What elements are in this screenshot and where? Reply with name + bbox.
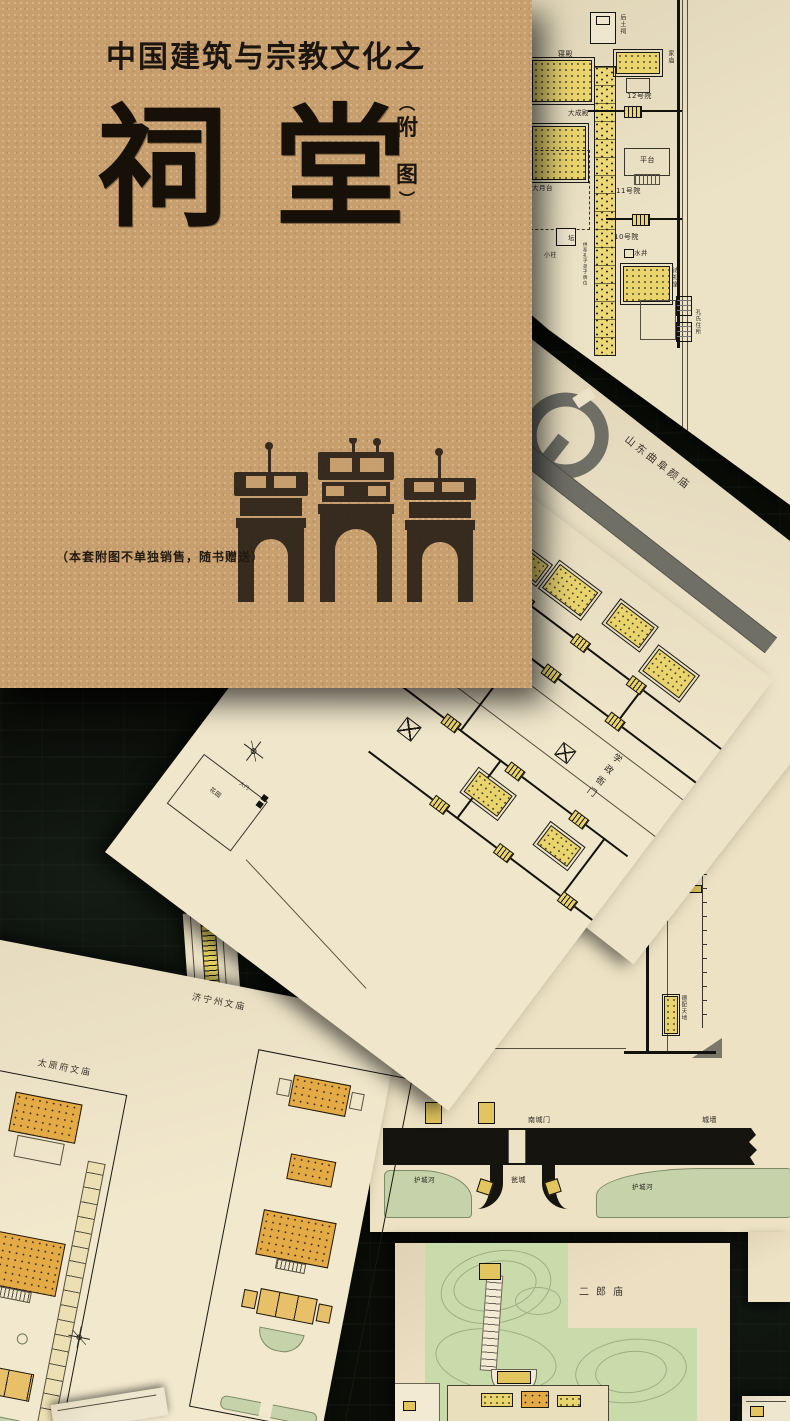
annotation-paren-close: ︶ bbox=[392, 192, 422, 208]
residence-block bbox=[676, 296, 692, 316]
shili-hall bbox=[623, 266, 670, 302]
plan-label: 诗礼堂 bbox=[670, 267, 677, 288]
plan-label: 后土祠 bbox=[618, 14, 625, 35]
sheet-title-right: 济宁州文庙 bbox=[191, 990, 247, 1013]
plan-label: 小柱 bbox=[544, 253, 557, 260]
stair-top-shrine bbox=[479, 1263, 501, 1280]
cover-note: （本套附图不单独销售，随书赠送） bbox=[56, 548, 264, 565]
moat-right bbox=[596, 1168, 790, 1218]
plan-label: 学政衙门 bbox=[581, 750, 623, 801]
sheet-margin-line bbox=[682, 0, 683, 470]
residence-block bbox=[676, 322, 692, 342]
hall bbox=[521, 1391, 549, 1408]
hall bbox=[642, 648, 696, 698]
hall bbox=[537, 825, 582, 867]
plan-label: 坛 bbox=[568, 235, 575, 242]
annotation-paren-open: ︵ bbox=[392, 96, 422, 112]
compass-rose-icon bbox=[66, 1324, 92, 1350]
sheet-erlang-temple: 二郎庙 bbox=[395, 1243, 730, 1421]
plan-label: 家庙 bbox=[666, 50, 673, 64]
sheet-title: 二郎庙 bbox=[579, 1283, 630, 1298]
terrace-hall bbox=[497, 1371, 531, 1384]
pavilion bbox=[554, 742, 576, 764]
dimension-line bbox=[246, 859, 367, 988]
plan-label: 孔氏住所 bbox=[694, 309, 700, 335]
annotation-char: 图 bbox=[392, 159, 422, 192]
plan-label: 12号院 bbox=[627, 92, 652, 100]
depeitiandi-hall bbox=[664, 996, 678, 1034]
jiamiao-annex bbox=[626, 78, 650, 93]
well-icon bbox=[624, 249, 634, 258]
book-cover: 中国建筑与宗教文化之 祠堂 ︵ 附 图 ︶ bbox=[0, 0, 532, 688]
houtuci-inner bbox=[596, 16, 610, 25]
sheet-margin-line bbox=[687, 0, 688, 475]
sheet-kong-temple: 寝殿后土祠家庙12号院大成殿平台11号院大月台10号院水井坛小柱供奉孔子弟子牌位… bbox=[528, 0, 790, 520]
wall-gatehouse bbox=[478, 1102, 495, 1124]
hall bbox=[542, 564, 598, 617]
hall bbox=[557, 1395, 581, 1407]
plan-label: 护城河 bbox=[632, 1184, 653, 1191]
city-wall-band bbox=[383, 1128, 759, 1165]
court-gate bbox=[632, 214, 650, 226]
plan-label: 南城门 bbox=[528, 1116, 551, 1124]
platform-steps bbox=[634, 174, 660, 185]
plan-label: 德配天地 bbox=[680, 995, 686, 1021]
plan-label: 瓮城 bbox=[511, 1176, 526, 1184]
qindian-hall bbox=[532, 60, 592, 102]
compass-rose-icon bbox=[237, 734, 271, 768]
plan-label: 平台 bbox=[640, 156, 655, 164]
hall bbox=[464, 771, 513, 817]
plan-label: 城墙 bbox=[702, 1116, 717, 1124]
wall-gatehouse bbox=[425, 1102, 442, 1124]
sheet-kong-temple-wrap: 寝殿后土祠家庙12号院大成殿平台11号院大月台10号院水井坛小柱供奉孔子弟子牌位… bbox=[528, 0, 790, 520]
temple-wall-line bbox=[624, 1051, 716, 1054]
plan-label: 护城河 bbox=[414, 1177, 435, 1184]
court-gate bbox=[624, 106, 642, 118]
legend-swatch bbox=[403, 1401, 416, 1411]
legend-swatch bbox=[750, 1406, 764, 1417]
product-photo-stage: 快睹门牌坊德配天地南城门城墙瓮城护城河护城河 山东曲阜颜庙 bbox=[0, 0, 790, 1421]
corner-sheet-bottom-right bbox=[742, 1396, 790, 1421]
pavilion bbox=[396, 717, 421, 742]
hall bbox=[481, 1393, 513, 1407]
cover-annotation: ︵ 附 图 ︶ bbox=[392, 96, 422, 208]
sheet-margin-line bbox=[746, 1401, 786, 1402]
plan-label: 供奉孔子弟子牌位 bbox=[582, 242, 587, 286]
jiamiao-hall bbox=[616, 52, 660, 74]
plan-label: 寝殿 bbox=[558, 50, 573, 58]
plan-label: 大成殿 bbox=[568, 110, 589, 117]
plan-label: 11号院 bbox=[616, 187, 641, 195]
triple-arch-memorial-gateway-stamp bbox=[226, 438, 482, 602]
contour-line bbox=[515, 1287, 561, 1315]
sheet-title-left: 太原府文庙 bbox=[37, 1055, 93, 1078]
map-corner-panel bbox=[395, 1383, 440, 1421]
sheet-city-temple-tab bbox=[748, 1232, 790, 1302]
hall bbox=[606, 602, 655, 648]
plan-label: 10号院 bbox=[614, 233, 639, 241]
plan-label: 大月台 bbox=[532, 185, 553, 192]
annotation-char: 附 bbox=[392, 112, 422, 145]
court-outline bbox=[640, 300, 676, 340]
gate-passage bbox=[508, 1130, 526, 1163]
plan-label: 水井 bbox=[634, 250, 648, 257]
hill-profile bbox=[692, 1038, 722, 1058]
garden-outline bbox=[167, 754, 268, 852]
